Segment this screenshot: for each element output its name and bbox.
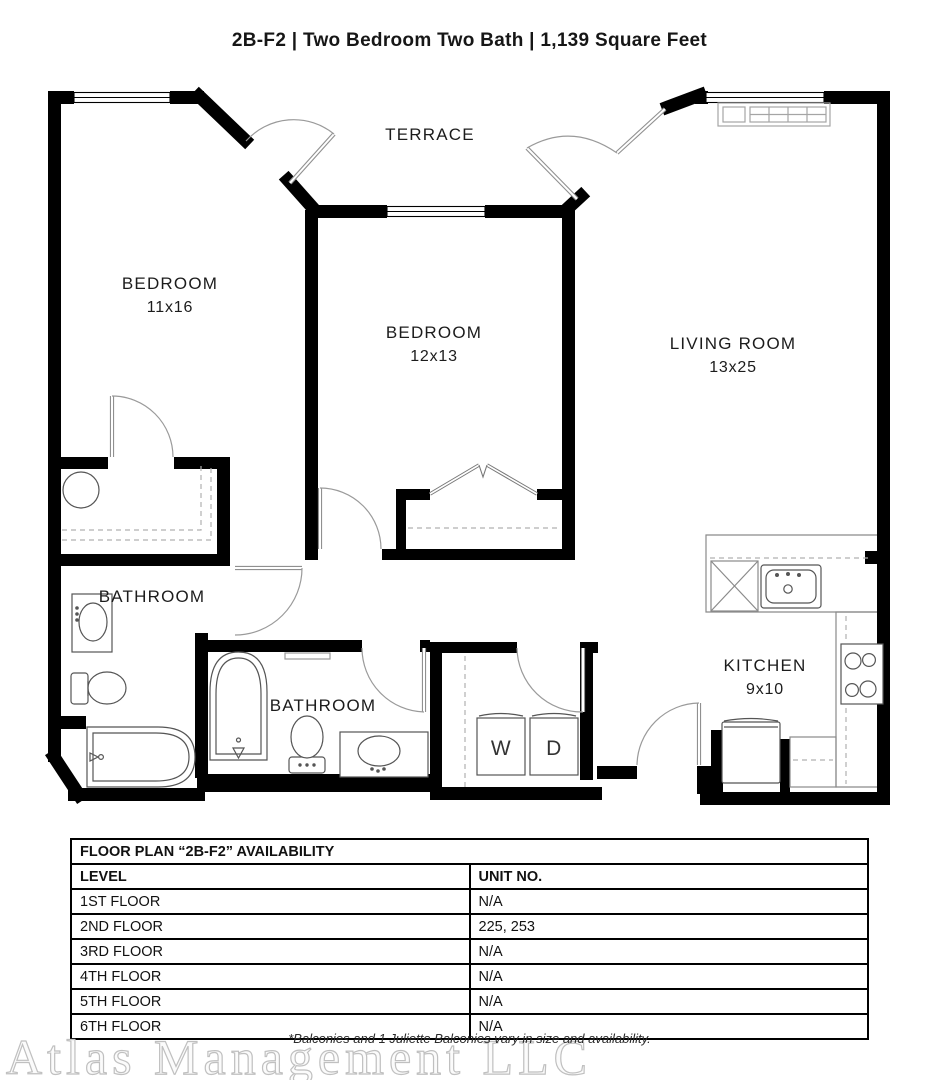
bathroom2-toilet <box>289 716 325 773</box>
bathroom1-toilet <box>71 672 126 704</box>
dims-bedroom2: 12x13 <box>410 348 458 365</box>
stove <box>841 644 883 704</box>
level-cell: 1ST FLOOR <box>71 889 470 914</box>
units-cell: N/A <box>470 939 869 964</box>
window-living-room <box>706 93 824 103</box>
table-row: 3RD FLOOR N/A <box>71 939 868 964</box>
label-dryer: D <box>546 737 562 760</box>
window-bedroom2 <box>387 207 485 217</box>
kitchen-sink <box>761 565 821 608</box>
window-bedroom1 <box>74 93 170 103</box>
table-row: 1ST FLOOR N/A <box>71 889 868 914</box>
units-cell: N/A <box>470 989 869 1014</box>
label-bathroom1: BATHROOM <box>99 587 206 606</box>
bathroom1-tub <box>87 727 195 787</box>
dims-kitchen: 9x10 <box>746 681 784 698</box>
units-cell: N/A <box>470 964 869 989</box>
col-header-level: LEVEL <box>71 864 470 889</box>
table-row: 2ND FLOOR 225, 253 <box>71 914 868 939</box>
footnote: *Balconies and 1 Juliette Balconies vary… <box>0 1031 939 1046</box>
bathroom2-vanity-sink <box>340 732 428 777</box>
table-title-row: FLOOR PLAN “2B-F2” AVAILABILITY <box>71 839 868 864</box>
table-title: FLOOR PLAN “2B-F2” AVAILABILITY <box>71 839 868 864</box>
level-cell: 3RD FLOOR <box>71 939 470 964</box>
bathroom2-tub <box>210 652 267 760</box>
level-cell: 5TH FLOOR <box>71 989 470 1014</box>
label-kitchen: KITCHEN <box>723 656 806 675</box>
label-bedroom1: BEDROOM <box>122 274 218 293</box>
floor-plan-drawing: TERRACE BEDROOM 11x16 BEDROOM 12x13 LIVI… <box>0 0 939 820</box>
fridge <box>722 719 780 784</box>
dims-living-room: 13x25 <box>709 359 757 376</box>
units-cell: 225, 253 <box>470 914 869 939</box>
label-bedroom2: BEDROOM <box>386 323 482 342</box>
ac-unit <box>718 103 830 126</box>
label-living-room: LIVING ROOM <box>670 334 797 353</box>
table-header-row: LEVEL UNIT NO. <box>71 864 868 889</box>
floor-plan-page: 2B-F2 | Two Bedroom Two Bath | 1,139 Squ… <box>0 0 939 1080</box>
windows <box>74 93 824 217</box>
label-washer: W <box>491 737 511 760</box>
availability-table: FLOOR PLAN “2B-F2” AVAILABILITY LEVEL UN… <box>70 838 869 1040</box>
table-row: 4TH FLOOR N/A <box>71 964 868 989</box>
water-heater <box>63 472 99 508</box>
label-bathroom2: BATHROOM <box>270 696 377 715</box>
table-row: 5TH FLOOR N/A <box>71 989 868 1014</box>
dims-bedroom1: 11x16 <box>147 299 193 316</box>
level-cell: 2ND FLOOR <box>71 914 470 939</box>
units-cell: N/A <box>470 889 869 914</box>
col-header-unit-no: UNIT NO. <box>470 864 869 889</box>
label-terrace: TERRACE <box>385 125 475 144</box>
level-cell: 4TH FLOOR <box>71 964 470 989</box>
kitchen-pantry-box <box>711 561 758 611</box>
